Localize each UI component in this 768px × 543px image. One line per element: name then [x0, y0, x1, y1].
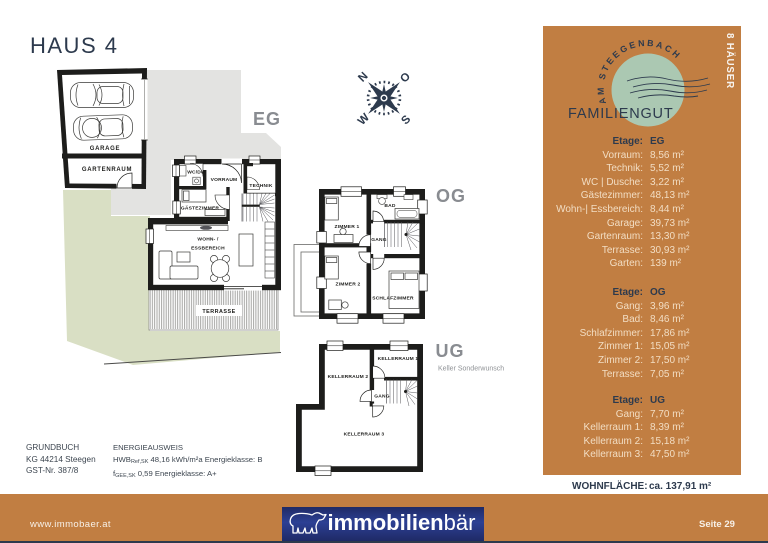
- svg-text:S: S: [399, 113, 413, 127]
- svg-text:TERRASSE: TERRASSE: [202, 309, 235, 315]
- svg-text:O: O: [398, 71, 413, 86]
- svg-text:EG: EG: [253, 109, 281, 129]
- svg-text:ZIMMER 1: ZIMMER 1: [335, 224, 360, 230]
- svg-text:KELLERRAUM 2: KELLERRAUM 2: [328, 374, 369, 380]
- svg-text:UG: UG: [436, 341, 465, 361]
- svg-text:W: W: [356, 112, 372, 128]
- svg-text:BAD: BAD: [384, 203, 395, 209]
- svg-text:GÄSTEZIMMER: GÄSTEZIMMER: [181, 205, 220, 212]
- svg-text:GANG: GANG: [371, 237, 386, 243]
- svg-text:OG: OG: [436, 186, 466, 206]
- svg-text:GANG: GANG: [374, 394, 389, 400]
- svg-text:VORRAUM: VORRAUM: [211, 177, 238, 183]
- svg-text:KELLERRAUM 1: KELLERRAUM 1: [378, 356, 419, 362]
- svg-text:TECHNIK: TECHNIK: [249, 183, 272, 189]
- svg-text:SCHLAFZIMMER: SCHLAFZIMMER: [372, 296, 414, 302]
- svg-text:KELLERRAUM 3: KELLERRAUM 3: [344, 432, 385, 438]
- svg-text:FAMILIENGUT: FAMILIENGUT: [568, 106, 673, 122]
- svg-text:GARTENRAUM: GARTENRAUM: [82, 167, 132, 173]
- svg-text:ESSBEREICH: ESSBEREICH: [191, 246, 225, 252]
- svg-text:Keller Sonderwunsch: Keller Sonderwunsch: [438, 366, 504, 373]
- svg-text:WOHN- /: WOHN- /: [197, 237, 219, 243]
- svg-text:GARAGE: GARAGE: [90, 146, 121, 152]
- svg-text:WC/DU: WC/DU: [187, 170, 205, 176]
- svg-text:ZIMMER 2: ZIMMER 2: [336, 282, 361, 288]
